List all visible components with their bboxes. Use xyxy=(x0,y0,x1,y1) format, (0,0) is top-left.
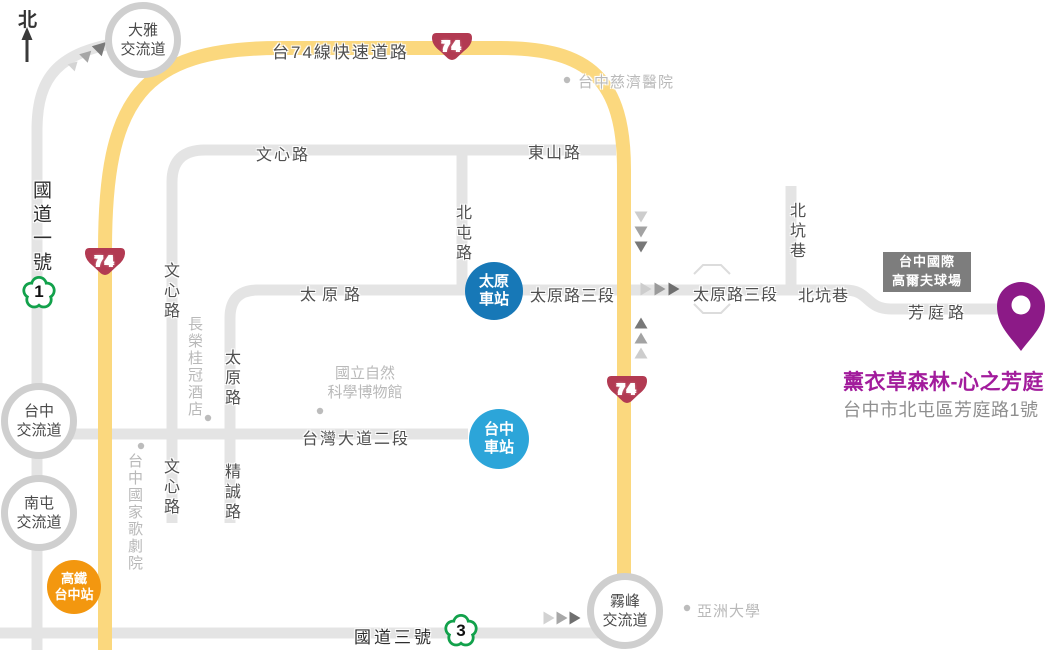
road-label-taiyuan-sec3-east: 太原路三段 xyxy=(693,281,778,305)
hsr-line2: 台中站 xyxy=(54,587,93,603)
poi-label-science-museum: 國立自然 科學博物館 xyxy=(325,364,405,402)
wufeng-line1: 霧峰 xyxy=(610,592,640,612)
interchange-taichung: 台中 交流道 xyxy=(1,383,77,459)
route-74-number-top: 74 xyxy=(432,38,472,55)
route-74-number-right: 74 xyxy=(607,381,647,398)
golf-course-box: 台中國際 高爾夫球場 xyxy=(883,252,971,292)
taiyuan-st-line1: 太原 xyxy=(479,273,509,291)
road-label-taiwan-blvd: 台灣大道二段 xyxy=(302,425,410,449)
nantun-line2: 交流道 xyxy=(16,513,61,533)
destination-address: 台中市北屯區芳庭路1號 xyxy=(843,396,1039,422)
taichung-st-line1: 台中 xyxy=(484,421,514,439)
road-label-national-hwy-3: 國道三號 xyxy=(354,623,434,648)
poi-label-evergreen-hotel: 長榮桂冠酒店 xyxy=(184,316,205,418)
taichung-st-line2: 車站 xyxy=(484,439,514,457)
map-canvas xyxy=(0,0,1050,650)
road-label-national-hwy-1: 國道一號 xyxy=(27,180,54,276)
road-label-wenxin-vertical-2: 文心路 xyxy=(157,458,181,518)
road-label-wenxin-vertical-1: 文心路 xyxy=(157,262,181,322)
poi-label-opera-house: 台中國家歌劇院 xyxy=(124,453,145,572)
chevrons-down xyxy=(635,212,648,253)
hsr-line1: 高鐵 xyxy=(61,571,87,587)
station-hsr-taichung: 高鐵 台中站 xyxy=(47,560,101,614)
route-map: 北 台74線快速道路 74 74 74 國道一號 1 文心路 東山路 北屯路 太… xyxy=(0,0,1050,650)
daya-line2: 交流道 xyxy=(120,40,165,60)
taiyuan-st-line2: 車站 xyxy=(479,291,509,309)
destination-pin-icon xyxy=(997,282,1045,351)
route-74-number-left: 74 xyxy=(85,253,125,270)
museum-line1: 國立自然 xyxy=(335,365,395,382)
road-label-taiyuan-sec3-west: 太原路三段 xyxy=(530,282,615,306)
road-label-beitun: 北屯路 xyxy=(449,204,473,264)
north-arrow-icon xyxy=(22,27,33,62)
road-label-taiyuan-horizontal: 太原路 xyxy=(300,281,366,305)
interchange-daya: 大雅 交流道 xyxy=(105,2,181,78)
chevrons-right-nh3 xyxy=(544,612,581,625)
golf-line1: 台中國際 xyxy=(899,253,955,272)
station-taichung: 台中 車站 xyxy=(469,409,529,469)
poi-label-tzuchi-hospital: 台中慈濟醫院 xyxy=(578,71,674,92)
poi-label-asia-university: 亞洲大學 xyxy=(697,600,761,621)
road-label-fangting: 芳庭路 xyxy=(908,299,968,323)
road-label-jingcheng: 精誠路 xyxy=(218,463,242,523)
taichung-ic-line2: 交流道 xyxy=(16,421,61,441)
interchange-nantun: 南屯 交流道 xyxy=(1,475,77,551)
underpass-mark-top xyxy=(694,265,730,274)
road-label-beikeng-horizontal: 北坑巷 xyxy=(798,282,849,306)
road-label-taiyuan-vertical: 太原路 xyxy=(218,349,242,409)
golf-line2: 高爾夫球場 xyxy=(892,272,962,291)
underpass-mark-bottom xyxy=(694,304,730,313)
museum-line2: 科學博物館 xyxy=(327,384,402,401)
daya-line1: 大雅 xyxy=(128,21,158,41)
interchange-wufeng: 霧峰 交流道 xyxy=(587,573,663,649)
chevrons-up xyxy=(635,318,648,359)
national-hwy-3-number: 3 xyxy=(446,621,476,641)
road-label-beikeng-vertical: 北坑巷 xyxy=(783,202,807,262)
north-label: 北 xyxy=(18,5,37,32)
road-label-expressway-74: 台74線快速道路 xyxy=(272,38,409,63)
wufeng-line2: 交流道 xyxy=(602,611,647,631)
poi-dots xyxy=(138,77,690,611)
destination-name: 薰衣草森林-心之芳庭 xyxy=(843,366,1044,396)
road-label-dongshan: 東山路 xyxy=(528,139,582,163)
taichung-ic-line1: 台中 xyxy=(24,402,54,422)
road-label-wenxin-top: 文心路 xyxy=(256,141,310,165)
national-hwy-1-number: 1 xyxy=(24,282,54,302)
nantun-line1: 南屯 xyxy=(24,494,54,514)
station-taiyuan: 太原 車站 xyxy=(465,262,523,320)
